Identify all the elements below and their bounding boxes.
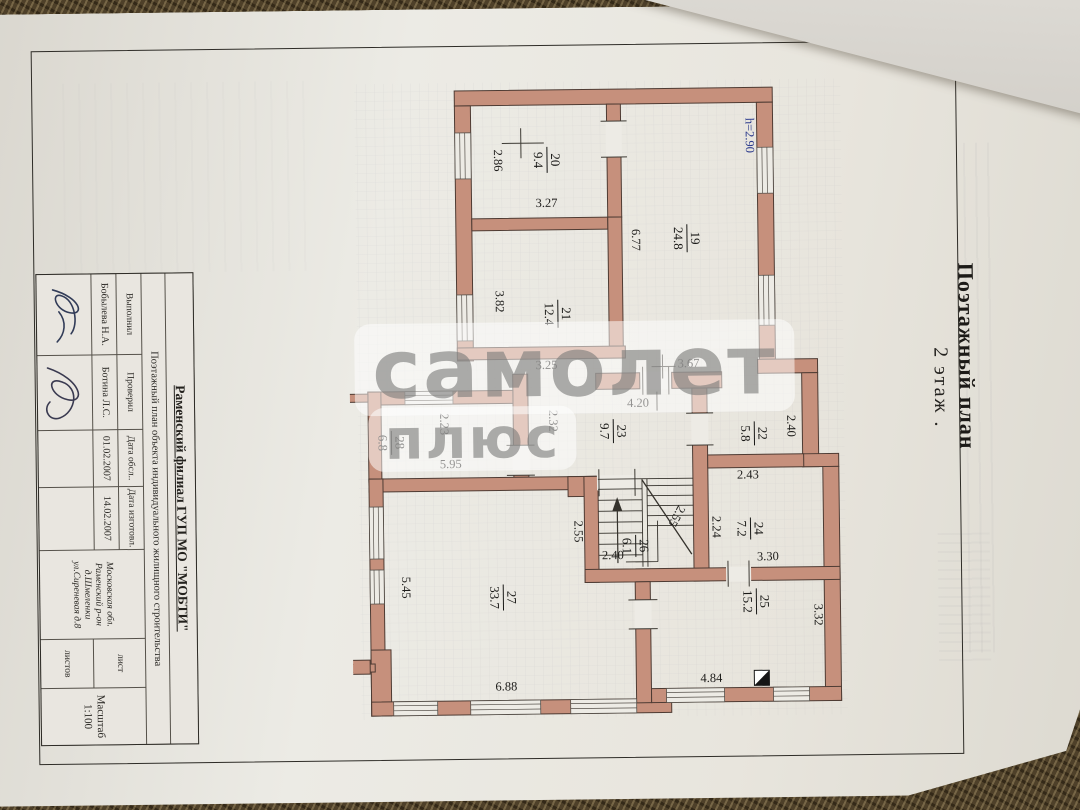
room-number: 24 xyxy=(751,522,766,536)
stamp-col-scale: Масштаб 1:100 xyxy=(41,688,146,745)
dim-label: 2.24 xyxy=(709,516,723,539)
panel-symbol xyxy=(754,670,769,685)
stamp-col-survey-date: Дата обсл.. 01.02.2007 xyxy=(38,430,143,487)
dim-label: 5.45 xyxy=(399,577,413,599)
room-area: 9.4 xyxy=(531,152,546,169)
dim-label: 2.40 xyxy=(784,415,798,437)
page-title-block: Поэтажный план xyxy=(952,263,981,478)
bti-stamp: Раменский филиал ГУП МО "МОБТИ" Поэтажны… xyxy=(35,272,199,746)
survey-date-value: 01.02.2007 xyxy=(93,430,118,486)
empty-cell xyxy=(39,487,94,550)
dim-label: 2.86 xyxy=(491,149,505,171)
watermark-line-1: самолет xyxy=(354,319,795,416)
dim-label: 3.82 xyxy=(493,290,507,312)
stamp-col-checked: Проверил Ботина Л.С. xyxy=(37,355,142,430)
dim-label: 6.77 xyxy=(629,229,643,251)
issue-date-label: Дата изготовл. xyxy=(119,487,144,549)
stamp-col-made: Выполнил Бобылева Н.А. xyxy=(36,274,141,355)
sheet-label: лист xyxy=(94,639,146,688)
issue-date-value: 14.02.2007 xyxy=(94,487,119,549)
floor-label-block: 2 этаж . xyxy=(927,347,952,462)
address-line-2: д.Шмеленки ул.Сиреневая д.8 xyxy=(70,550,93,638)
room-number: 19 xyxy=(688,232,703,245)
room-area: 33.7 xyxy=(487,586,502,609)
organization-name: Раменский филиал ГУП МО "МОБТИ" xyxy=(172,385,191,632)
floor-label: 2 этаж . xyxy=(927,347,952,462)
empty-cell xyxy=(38,430,93,487)
room-area: 9.7 xyxy=(597,423,612,440)
room-area: 5.8 xyxy=(738,425,753,441)
made-by-name: Бобылева Н.А. xyxy=(91,274,116,354)
ceiling-height-note: h=2.90 xyxy=(743,118,757,153)
room-number: 21 xyxy=(559,307,574,320)
room-number: 22 xyxy=(755,427,770,440)
address-line-1: Московская обл. Раменский р-он xyxy=(92,550,115,638)
dim-label: 2.43 xyxy=(737,467,759,481)
object-address: Московская обл. Раменский р-он д.Шмеленк… xyxy=(40,550,145,639)
room-number: 27 xyxy=(504,591,519,605)
page-title: Поэтажный план xyxy=(952,263,981,478)
room-number: 25 xyxy=(757,595,772,608)
scale-label: Масштаб 1:100 xyxy=(41,688,146,745)
signature-icon xyxy=(40,282,87,349)
room-number: 20 xyxy=(548,153,563,166)
checked-by-signature xyxy=(37,355,92,430)
stamp-organization: Раменский филиал ГУП МО "МОБТИ" xyxy=(165,273,198,743)
dim-label: 3.30 xyxy=(757,549,779,563)
signature-icon xyxy=(41,362,88,425)
dim-label: 2.55 xyxy=(571,521,585,543)
photo-of-floor-plan-document: { "doc": { "title": "Поэтажный план", "f… xyxy=(0,0,1080,810)
stamp-col-address: Московская обл. Раменский р-он д.Шмеленк… xyxy=(40,550,145,639)
stamp-col-issue-date: Дата изготовл. 14.02.2007 xyxy=(39,487,144,550)
stamp-table: Раменский филиал ГУП МО "МОБТИ" Поэтажны… xyxy=(35,272,199,746)
dim-label: 3.32 xyxy=(811,604,825,626)
watermark-line-2: плюс xyxy=(368,406,577,473)
checked-by-name: Ботина Л.С. xyxy=(92,355,117,429)
checked-by-label: Проверил xyxy=(117,355,142,429)
room-number: 23 xyxy=(614,424,629,437)
stamp-col-sheet: лист листов xyxy=(41,639,146,688)
dim-label: 2.40 xyxy=(602,548,624,562)
room-area: 24.8 xyxy=(671,227,686,250)
sheets-label: листов xyxy=(41,639,94,688)
dim-label: 6.88 xyxy=(495,679,517,693)
room-area: 15.2 xyxy=(740,590,755,613)
paper-sheet: Поэтажный план 2 этаж . Раменский филиал… xyxy=(0,1,1080,807)
dim-label: 4.84 xyxy=(700,671,723,685)
made-by-label: Выполнил xyxy=(116,274,141,354)
made-by-signature xyxy=(36,274,91,355)
room-number: 26 xyxy=(637,539,652,553)
dim-label: 3.27 xyxy=(536,196,558,210)
survey-date-label: Дата обсл.. xyxy=(118,430,143,486)
room-area: 7.2 xyxy=(734,520,749,536)
stamp-grid: Выполнил Бобылева Н.А. Проверил Ботина Л… xyxy=(36,274,146,745)
